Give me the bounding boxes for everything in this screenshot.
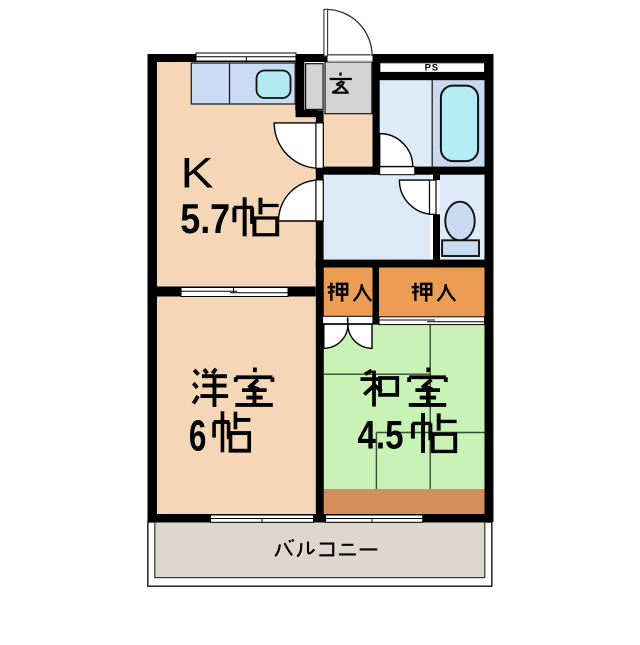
svg-text:5.7: 5.7 xyxy=(180,195,230,242)
svg-text:4.5: 4.5 xyxy=(358,414,404,458)
svg-text:PS: PS xyxy=(425,63,439,74)
svg-text:K: K xyxy=(181,150,214,198)
svg-text:6: 6 xyxy=(189,412,207,461)
